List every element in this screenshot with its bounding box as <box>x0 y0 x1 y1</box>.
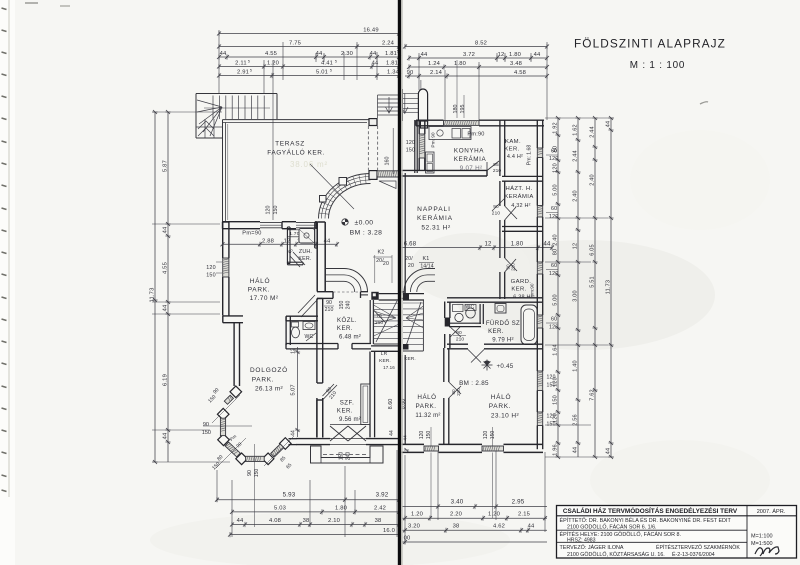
svg-text:HRSZ: 4983: HRSZ: 4983 <box>567 537 596 543</box>
svg-text:9.56 m²: 9.56 m² <box>339 416 361 423</box>
svg-text:4.58: 4.58 <box>514 70 526 76</box>
svg-text:WC: WC <box>305 334 314 340</box>
svg-text:+0.45: +0.45 <box>497 363 514 370</box>
svg-text:2.20: 2.20 <box>450 512 462 518</box>
svg-text:44: 44 <box>421 52 428 58</box>
svg-text:1.34: 1.34 <box>387 70 400 76</box>
svg-text:KAM.: KAM. <box>505 139 521 145</box>
svg-text:M=1:100: M=1:100 <box>751 534 773 540</box>
svg-text:Pm=90: Pm=90 <box>242 231 261 237</box>
svg-text:150: 150 <box>547 422 556 428</box>
svg-text:3.48: 3.48 <box>510 61 522 67</box>
svg-text:1.20: 1.20 <box>488 512 500 518</box>
svg-text:6.05: 6.05 <box>590 244 596 256</box>
svg-text:4.55: 4.55 <box>162 262 168 274</box>
svg-text:1.24: 1.24 <box>428 61 441 67</box>
svg-text:NAPPALI: NAPPALI <box>417 206 451 213</box>
svg-text:1.64: 1.64 <box>553 344 559 356</box>
svg-text:120: 120 <box>547 375 556 381</box>
svg-text:240: 240 <box>346 452 352 461</box>
svg-text:8.60: 8.60 <box>388 399 394 410</box>
svg-text:20/: 20/ <box>405 256 413 262</box>
svg-text:M : 1 : 100: M : 1 : 100 <box>630 60 685 71</box>
svg-text:120: 120 <box>419 431 425 440</box>
svg-text:2.24: 2.24 <box>382 41 395 47</box>
svg-text:BM : 3.28: BM : 3.28 <box>350 230 383 237</box>
svg-text:180: 180 <box>453 105 459 114</box>
svg-text:44: 44 <box>220 51 227 57</box>
svg-text:SZF.: SZF. <box>340 400 355 407</box>
svg-text:pm:90: pm:90 <box>530 283 535 296</box>
svg-text:4.41: 4.41 <box>321 61 333 67</box>
svg-text:52.31 H²: 52.31 H² <box>421 225 451 232</box>
svg-text:210: 210 <box>456 388 461 396</box>
svg-text:KER.: KER. <box>337 325 353 332</box>
svg-text:150: 150 <box>339 452 345 461</box>
svg-text:00: 00 <box>404 535 411 541</box>
svg-text:5.01: 5.01 <box>316 70 328 76</box>
svg-text:ZUH.: ZUH. <box>299 249 312 255</box>
svg-text:95: 95 <box>493 162 499 168</box>
svg-text:4.32 H²: 4.32 H² <box>511 203 530 209</box>
svg-text:44: 44 <box>162 226 168 233</box>
svg-text:5.00: 5.00 <box>553 294 559 306</box>
svg-text:210: 210 <box>456 337 464 343</box>
svg-text:150: 150 <box>406 148 415 154</box>
svg-text:16.0: 16.0 <box>383 528 395 534</box>
svg-text:3.20: 3.20 <box>408 524 420 530</box>
svg-text:5.87: 5.87 <box>162 160 168 172</box>
svg-text:12: 12 <box>498 52 505 58</box>
svg-text:6.48 m²: 6.48 m² <box>339 334 361 341</box>
svg-text:38: 38 <box>303 518 310 524</box>
svg-text:120: 120 <box>549 325 558 331</box>
svg-text:5: 5 <box>330 69 332 73</box>
svg-text:KER.: KER. <box>298 256 311 262</box>
svg-text:5: 5 <box>335 60 337 64</box>
svg-text:38.06 m²: 38.06 m² <box>290 160 328 169</box>
svg-text:1.70: 1.70 <box>289 231 299 237</box>
svg-text:44: 44 <box>237 518 244 524</box>
svg-text:44: 44 <box>389 430 395 436</box>
svg-text:44: 44 <box>573 447 579 454</box>
svg-text:26.13 m²: 26.13 m² <box>255 386 284 393</box>
svg-text:Pm: 1.68: Pm: 1.68 <box>527 145 533 166</box>
svg-text:2100 GÖDÖLLŐ, KÖZTÁRSASÁG U. 1: 2100 GÖDÖLLŐ, KÖZTÁRSASÁG U. 16. <box>567 551 665 558</box>
svg-text:KER.: KER. <box>511 287 526 293</box>
svg-text:É-2-13-0376/2004: É-2-13-0376/2004 <box>672 551 715 558</box>
svg-text:5.51: 5.51 <box>590 276 596 288</box>
svg-text:11.32 m²: 11.32 m² <box>415 412 440 419</box>
svg-text:120: 120 <box>549 214 558 220</box>
svg-text:210: 210 <box>492 211 501 216</box>
svg-text:2.11: 2.11 <box>235 61 247 67</box>
svg-text:1.80: 1.80 <box>509 52 521 58</box>
svg-text:150: 150 <box>547 383 556 389</box>
svg-text:60: 60 <box>551 263 557 269</box>
svg-text:2.40: 2.40 <box>553 234 559 246</box>
svg-text:5: 5 <box>248 60 250 64</box>
svg-text:2.88: 2.88 <box>262 238 274 244</box>
svg-text:90: 90 <box>247 470 253 476</box>
svg-text:60: 60 <box>551 149 557 155</box>
svg-text:5.93: 5.93 <box>283 492 296 499</box>
svg-text:HÁLÓ: HÁLÓ <box>491 392 512 401</box>
svg-text:44: 44 <box>606 448 612 455</box>
svg-text:M=1:500: M=1:500 <box>751 541 773 547</box>
svg-text:80: 80 <box>553 249 559 256</box>
svg-text:44: 44 <box>316 51 323 57</box>
svg-text:KER.: KER. <box>404 356 416 362</box>
svg-text:2.95: 2.95 <box>512 498 525 505</box>
svg-text:17.16: 17.16 <box>383 365 395 370</box>
svg-text:120: 120 <box>549 271 558 277</box>
svg-text:ÉPÍTÉSZTERVEZŐ SZAKMÉRNÖK: ÉPÍTÉSZTERVEZŐ SZAKMÉRNÖK <box>656 544 740 551</box>
svg-text:KER.: KER. <box>504 147 519 153</box>
svg-text:GARD.: GARD. <box>511 279 532 285</box>
svg-text:TERVEZŐ: JÁGER ILONA: TERVEZŐ: JÁGER ILONA <box>560 544 624 551</box>
svg-text:4.4 H²: 4.4 H² <box>507 154 523 160</box>
svg-text:KERÁMIA: KERÁMIA <box>504 193 533 200</box>
svg-text:150: 150 <box>254 469 260 478</box>
svg-text:HÁLÓ: HÁLÓ <box>250 276 271 285</box>
svg-text:150: 150 <box>339 301 345 310</box>
svg-text:2.44: 2.44 <box>590 126 596 138</box>
svg-text:11.73: 11.73 <box>606 280 612 294</box>
svg-text:TERASZ: TERASZ <box>275 141 305 148</box>
svg-text:120: 120 <box>553 163 559 173</box>
svg-text:1.20: 1.20 <box>411 512 423 518</box>
svg-text:5.07: 5.07 <box>291 384 297 395</box>
svg-text:44: 44 <box>543 241 551 247</box>
svg-text:±0.00: ±0.00 <box>355 220 374 227</box>
svg-text:44: 44 <box>372 61 379 67</box>
svg-text:90: 90 <box>326 300 332 306</box>
svg-text:44: 44 <box>291 430 297 436</box>
svg-text:2007. ÁPR.: 2007. ÁPR. <box>757 508 786 515</box>
svg-text:44: 44 <box>162 432 168 439</box>
svg-text:2.30: 2.30 <box>341 51 353 57</box>
svg-text:K1: K1 <box>423 256 430 262</box>
svg-text:Pm:90: Pm:90 <box>467 132 484 138</box>
svg-text:120: 120 <box>206 265 216 271</box>
svg-text:2.56: 2.56 <box>573 414 579 426</box>
svg-text:210: 210 <box>325 307 334 313</box>
svg-text:44: 44 <box>534 52 541 58</box>
svg-text:KER.: KER. <box>337 408 353 415</box>
svg-text:CSALÁDI HÁZ TERVMÓDOSÍTÁS ENGE: CSALÁDI HÁZ TERVMÓDOSÍTÁS ENGEDÉLYEZÉSI … <box>563 506 738 515</box>
svg-text:60: 60 <box>551 206 557 212</box>
svg-text:1.81: 1.81 <box>385 51 397 57</box>
svg-text:1.92: 1.92 <box>553 122 559 134</box>
svg-text:23.10 H²: 23.10 H² <box>491 413 520 420</box>
svg-text:2.15: 2.15 <box>518 512 530 518</box>
svg-text:90: 90 <box>493 204 499 209</box>
svg-text:3.00: 3.00 <box>573 290 579 302</box>
svg-text:44: 44 <box>370 51 377 57</box>
svg-text:1.62: 1.62 <box>573 124 579 136</box>
svg-text:HÁZT. H.: HÁZT. H. <box>505 185 532 192</box>
svg-text:38: 38 <box>453 524 460 530</box>
svg-text:120: 120 <box>406 140 415 146</box>
svg-text:12: 12 <box>573 243 579 250</box>
svg-text:FAGYÁLLÓ KER.: FAGYÁLLÓ KER. <box>267 148 324 157</box>
svg-text:ÉPÍTTETŐ: DR. BAKONYI BÉLA ÉS: ÉPÍTTETŐ: DR. BAKONYI BÉLA ÉS DR. BAKONY… <box>560 517 732 524</box>
svg-text:38: 38 <box>375 518 382 524</box>
svg-text:150: 150 <box>553 395 559 405</box>
svg-text:5.00: 5.00 <box>553 184 559 196</box>
svg-text:3.72: 3.72 <box>463 52 475 58</box>
svg-text:12: 12 <box>291 348 297 354</box>
svg-text:4.08: 4.08 <box>269 518 281 524</box>
svg-text:2.14: 2.14 <box>430 70 443 76</box>
svg-text:FÖLDSZINTI ALAPRAJZ: FÖLDSZINTI ALAPRAJZ <box>574 37 726 51</box>
svg-text:20: 20 <box>383 261 389 267</box>
svg-text:44: 44 <box>162 304 168 311</box>
svg-text:150: 150 <box>273 206 279 215</box>
svg-text:BM : 2.85: BM : 2.85 <box>459 380 489 387</box>
svg-text:DOLGOZÓ: DOLGOZÓ <box>250 365 288 374</box>
svg-text:44: 44 <box>606 121 612 128</box>
svg-text:1.80: 1.80 <box>511 241 524 247</box>
svg-text:90: 90 <box>203 422 209 428</box>
svg-text:WC: WC <box>466 305 475 311</box>
svg-text:1.40: 1.40 <box>573 360 579 372</box>
svg-text:KERÁMIA: KERÁMIA <box>454 154 487 163</box>
svg-text:16.49: 16.49 <box>363 28 379 34</box>
svg-text:FÜRDŐ SZ: FÜRDŐ SZ <box>486 320 520 327</box>
svg-text:2.40: 2.40 <box>590 174 596 186</box>
svg-text:2.40: 2.40 <box>573 190 579 202</box>
svg-text:210: 210 <box>493 168 501 174</box>
svg-text:KÖZL.: KÖZL. <box>337 317 357 324</box>
svg-text:PARK.: PARK. <box>248 287 271 294</box>
svg-text:210: 210 <box>511 263 516 271</box>
svg-text:17.70 M²: 17.70 M² <box>250 295 279 302</box>
svg-text:20: 20 <box>408 263 414 269</box>
svg-text:5.03: 5.03 <box>274 505 286 511</box>
svg-text:150: 150 <box>490 431 496 440</box>
svg-text:11.73: 11.73 <box>149 287 155 302</box>
svg-text:12: 12 <box>484 241 492 247</box>
svg-text:2.42: 2.42 <box>374 505 386 511</box>
svg-text:44: 44 <box>528 524 535 530</box>
svg-text:PARK.: PARK. <box>416 403 437 410</box>
svg-text:160: 160 <box>385 157 391 166</box>
svg-text:120: 120 <box>549 156 558 162</box>
svg-text:9.79 H²: 9.79 H² <box>492 337 513 344</box>
svg-text:120: 120 <box>483 431 489 440</box>
svg-text:120: 120 <box>547 414 556 420</box>
svg-text:195: 195 <box>460 105 466 114</box>
svg-text:2.44: 2.44 <box>573 150 579 162</box>
svg-text:3.40: 3.40 <box>451 498 464 505</box>
svg-text:120: 120 <box>266 206 272 215</box>
svg-text:7.75: 7.75 <box>289 41 301 47</box>
svg-text:150: 150 <box>202 430 211 436</box>
svg-text:2100 GÖDÖLLŐ, FÁCÁN SOR 6. 1/6: 2100 GÖDÖLLŐ, FÁCÁN SOR 6. 1/6. <box>567 523 657 530</box>
svg-text:KER.: KER. <box>379 358 391 364</box>
svg-text:PARK.: PARK. <box>252 377 275 384</box>
svg-text:150: 150 <box>206 273 216 279</box>
svg-text:2.10: 2.10 <box>328 518 340 524</box>
svg-text:3.92: 3.92 <box>376 492 389 499</box>
svg-text:1.81: 1.81 <box>386 61 398 67</box>
svg-text:K2: K2 <box>378 250 385 256</box>
svg-text:4.55: 4.55 <box>265 51 277 57</box>
svg-text:1.96: 1.96 <box>553 444 559 456</box>
svg-text:7.62: 7.62 <box>590 389 596 401</box>
svg-text:PARK.: PARK. <box>489 403 512 410</box>
svg-text:90: 90 <box>407 70 414 76</box>
svg-text:240: 240 <box>346 301 352 310</box>
svg-text:KONYHA: KONYHA <box>454 148 484 155</box>
svg-text:2.91: 2.91 <box>237 70 249 76</box>
svg-text:KERÁMIA: KERÁMIA <box>417 213 453 222</box>
svg-text:60: 60 <box>551 317 557 323</box>
svg-text:8.52: 8.52 <box>475 41 487 47</box>
svg-text:90: 90 <box>456 330 462 336</box>
svg-text:6.19: 6.19 <box>162 374 168 386</box>
svg-text:4.62: 4.62 <box>493 524 505 530</box>
svg-text:HÁLÓ: HÁLÓ <box>417 392 436 401</box>
svg-text:5: 5 <box>250 69 252 73</box>
svg-text:KER.: KER. <box>488 328 504 335</box>
svg-text:1.80: 1.80 <box>454 61 466 67</box>
